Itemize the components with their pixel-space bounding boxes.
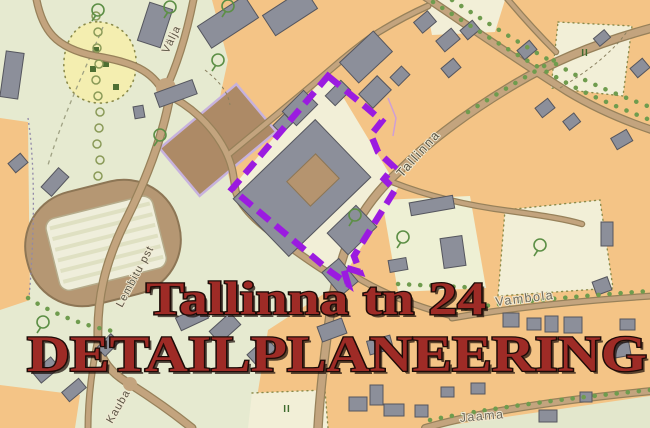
orchard-symbol: II <box>581 48 589 59</box>
building <box>349 397 367 411</box>
title-line1: Tallinna tn 24 <box>146 273 486 325</box>
building <box>388 258 408 273</box>
title-line2: DETAILPLANEERING <box>27 327 647 383</box>
building <box>601 222 613 246</box>
orchard-symbol: II <box>283 404 291 415</box>
building <box>539 410 557 422</box>
building <box>133 105 145 119</box>
building <box>441 387 454 397</box>
building <box>384 404 404 416</box>
map-canvas: II II Välja Tallinna Lembitu pst Kauba V… <box>0 0 650 428</box>
building <box>415 405 428 417</box>
building <box>370 385 383 405</box>
building <box>503 313 519 327</box>
planning-map-image: II II Välja Tallinna Lembitu pst Kauba V… <box>0 0 650 428</box>
building <box>440 236 466 269</box>
